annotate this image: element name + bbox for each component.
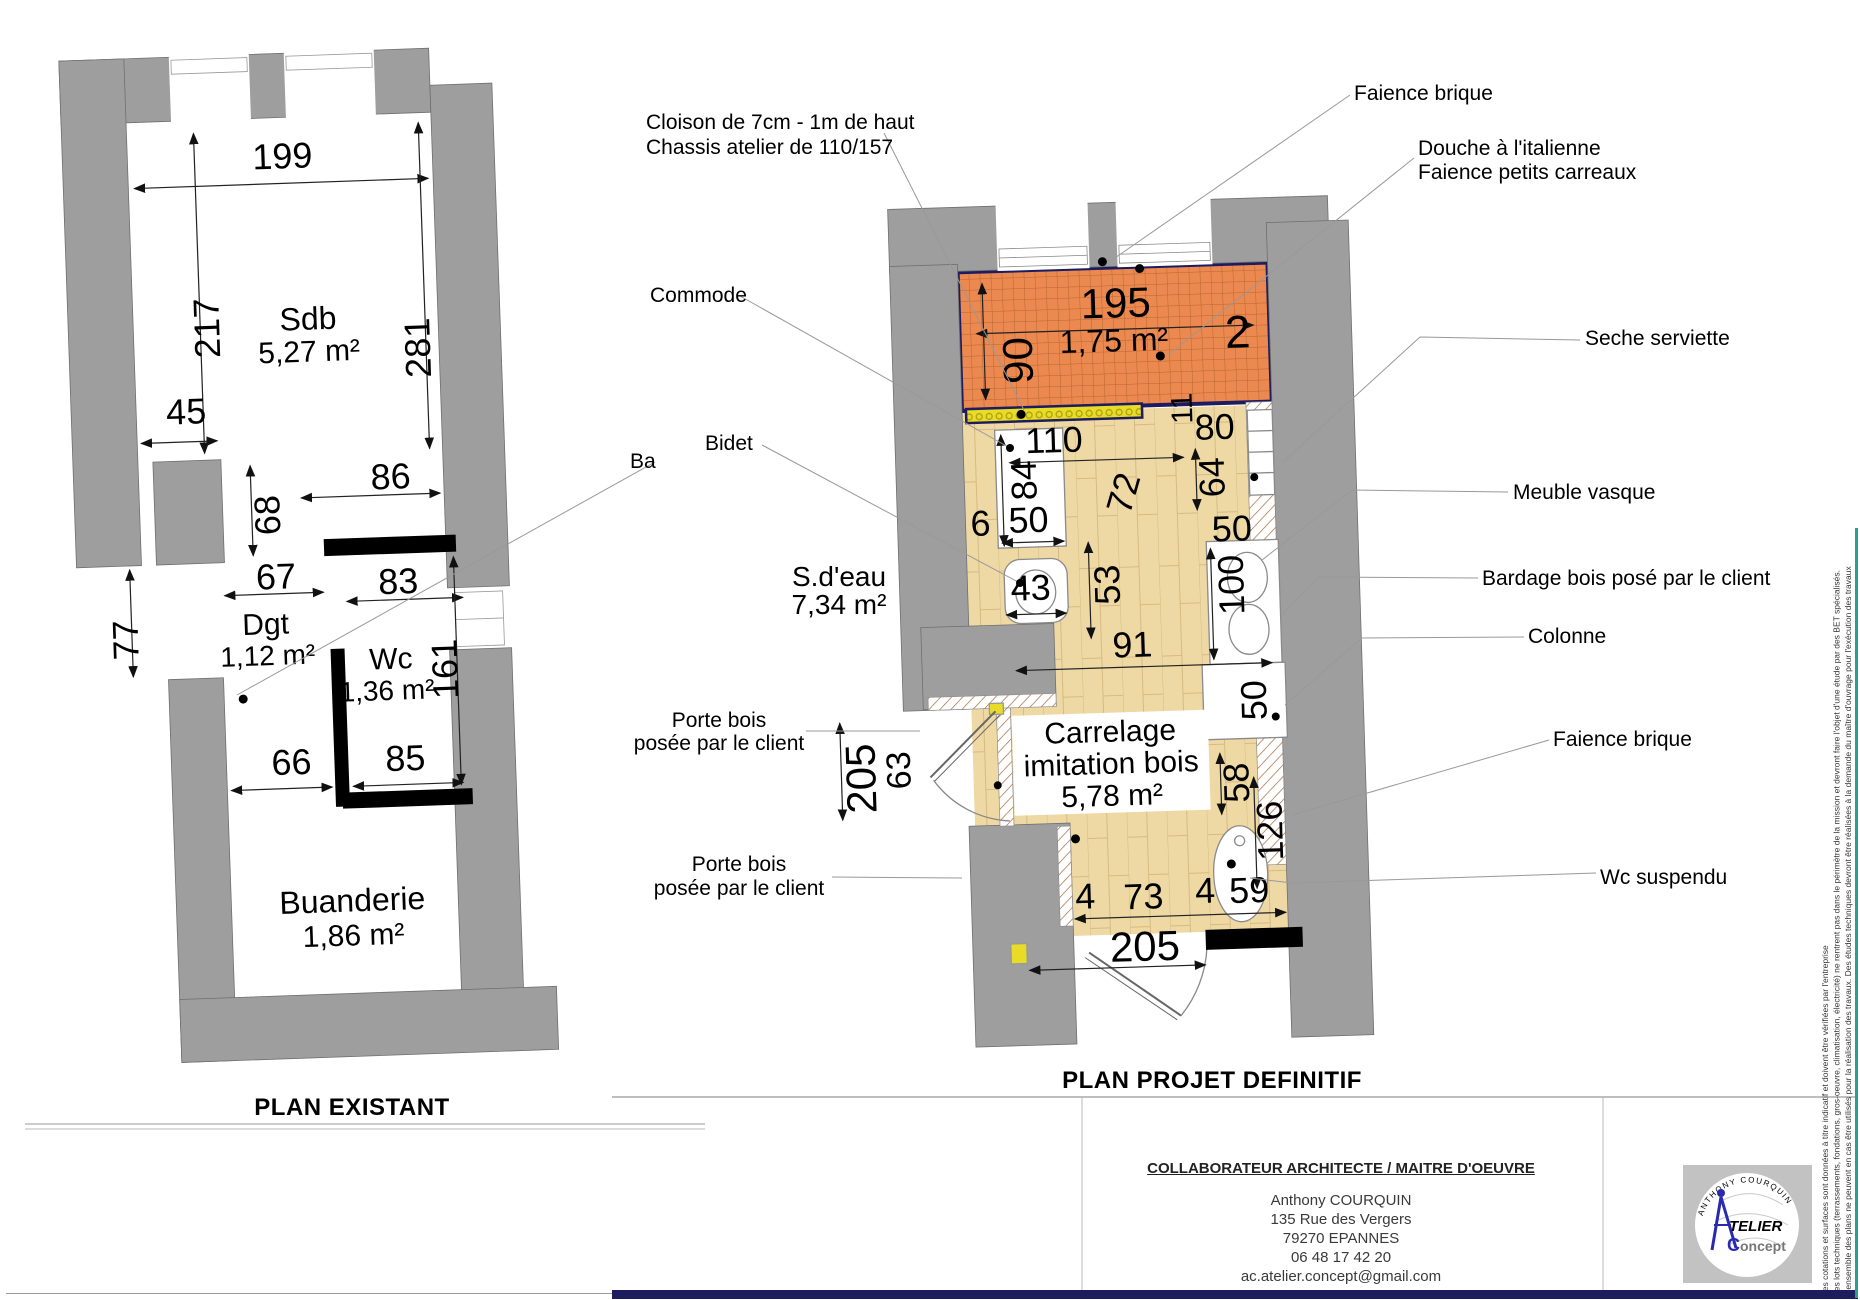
dim-83: 83 [377,560,418,602]
dim-4a: 4 [1075,875,1096,917]
disclaimer-line-3: L'ensemble des plans ne peuvent en cas ê… [1843,528,1855,1296]
disclaimer-line-2: Les lots techniques (terrassements, fond… [1832,528,1844,1296]
room-buanderie: Buanderie [279,880,426,921]
dim-45: 45 [165,390,206,432]
room-sdeau-area: 7,34 m² [792,589,887,620]
dim-6: 6 [970,502,991,544]
atelier-concept-logo: ANTHONY COURQUIN TELIER Concept [1683,1165,1812,1283]
callout-seche: Seche serviette [1585,327,1730,350]
drawing-sheet: 199 217 281 45 68 86 67 83 77 161 66 85 … [0,0,1860,1300]
callout-cloison-2: Chassis atelier de 110/157 [646,136,893,159]
title-plan-projet: PLAN PROJET DEFINITIF [1062,1067,1362,1094]
plan-projet: Carrelage imitation bois 5,78 m² 195 90 … [820,194,1374,1051]
dim-64: 64 [1191,457,1233,498]
disclaimer-vertical-text: Les cotations et surfaces sont données à… [1820,528,1856,1296]
dim-73: 73 [1123,875,1164,917]
callout-porte1-2: posée par le client [634,732,805,755]
bottom-black-wall [1205,927,1303,950]
room-dgt-area: 1,12 m² [220,639,316,673]
callout-faience-bas: Faience brique [1553,728,1692,751]
room-buanderie-area: 1,86 m² [302,918,405,955]
floor-area: 5,78 m² [1061,778,1164,814]
dim-90: 90 [994,336,1042,384]
callouts-right: Faience brique Douche à l'italienne Faie… [1354,82,1771,889]
architect-email: ac.atelier.concept@gmail.com [1086,1267,1596,1286]
dim-67: 67 [255,555,296,597]
dim-4b: 4 [1195,870,1216,912]
dim-126: 126 [1248,800,1291,861]
dim-43: 43 [1010,567,1051,609]
dim-100: 100 [1210,554,1253,615]
plan-existant: 199 217 281 45 68 86 67 83 77 161 66 85 … [59,44,559,1066]
floor-label-2: imitation bois [1023,745,1199,783]
dim-63: 63 [880,751,919,790]
dim-91: 91 [1112,623,1153,665]
architect-phone: 06 48 17 42 20 [1086,1248,1596,1267]
callout-porte2-1: Porte bois [692,853,787,876]
dim-50-vasque: 50 [1211,507,1252,549]
dim-58: 58 [1215,762,1257,803]
dim-53: 53 [1086,564,1128,605]
dim-217: 217 [185,297,228,358]
callout-cloison-1: Cloison de 7cm - 1m de haut [646,111,915,134]
logo-atelier-text: TELIER [1729,1218,1783,1235]
bottom-border-line [6,1293,612,1294]
plans-canvas: 199 217 281 45 68 86 67 83 77 161 66 85 … [0,0,1860,1300]
callout-faience-haut: Faience brique [1354,82,1493,105]
dim-199: 199 [252,134,313,177]
logo-concept-text: Concept [1727,1235,1786,1255]
room-wc: Wc [369,642,413,676]
architect-address1: 135 Rue des Vergers [1086,1210,1596,1229]
callout-ba: Ba [630,450,656,473]
dim-205-bas: 205 [1109,922,1181,971]
dim-77: 77 [104,619,146,660]
dim-85: 85 [385,737,426,779]
callout-bidet: Bidet [705,432,753,455]
title-block-header: COLLABORATEUR ARCHITECTE / MAITRE D'OEUV… [1086,1160,1596,1177]
callout-douche-2: Faience petits carreaux [1418,161,1637,184]
room-sdeau: S.d'eau [792,561,886,592]
room-sdb: Sdb [279,300,337,338]
callout-bardage: Bardage bois posé par le client [1482,567,1771,590]
disclaimer-line-1: Les cotations et surfaces sont données à… [1820,528,1832,1296]
dim-2: 2 [1224,305,1251,358]
architect-name: Anthony COURQUIN [1086,1191,1596,1210]
dim-66: 66 [271,741,312,783]
dim-281: 281 [396,317,439,378]
dim-86: 86 [370,455,411,497]
callout-commode: Commode [650,284,747,307]
room-sdb-area: 5,27 m² [258,334,361,371]
dim-195: 195 [1080,278,1152,327]
dim-110: 110 [1025,418,1084,461]
architect-address2: 79270 EPANNES [1086,1229,1596,1248]
dim-50-colonne: 50 [1233,680,1275,721]
dim-205-porte: 205 [836,743,885,815]
floor-label-1: Carrelage [1044,714,1177,751]
title-block: COLLABORATEUR ARCHITECTE / MAITRE D'OEUV… [1086,1160,1596,1286]
dim-68: 68 [246,494,288,535]
callout-porte2-2: posée par le client [654,877,825,900]
dim-80: 80 [1194,406,1235,448]
callout-porte1-1: Porte bois [672,709,767,732]
callout-douche-1: Douche à l'italienne [1418,137,1601,160]
dim-84: 84 [1003,460,1045,501]
room-dgt: Dgt [242,607,290,642]
logo-canvas: ANTHONY COURQUIN TELIER Concept [1683,1165,1812,1283]
callout-colonne: Colonne [1528,625,1606,648]
callout-meuble: Meuble vasque [1513,481,1655,504]
right-teal-line [1855,528,1858,1298]
room-wc-area: 1,36 m² [339,673,435,707]
dim-59: 59 [1229,869,1270,911]
callout-wc-suspendu: Wc suspendu [1600,866,1727,889]
title-plan-existant: PLAN EXISTANT [254,1094,449,1121]
bottom-navy-bar [612,1290,1858,1299]
dim-douche-area: 1,75 m² [1059,321,1169,360]
dim-50-commode: 50 [1008,499,1049,541]
